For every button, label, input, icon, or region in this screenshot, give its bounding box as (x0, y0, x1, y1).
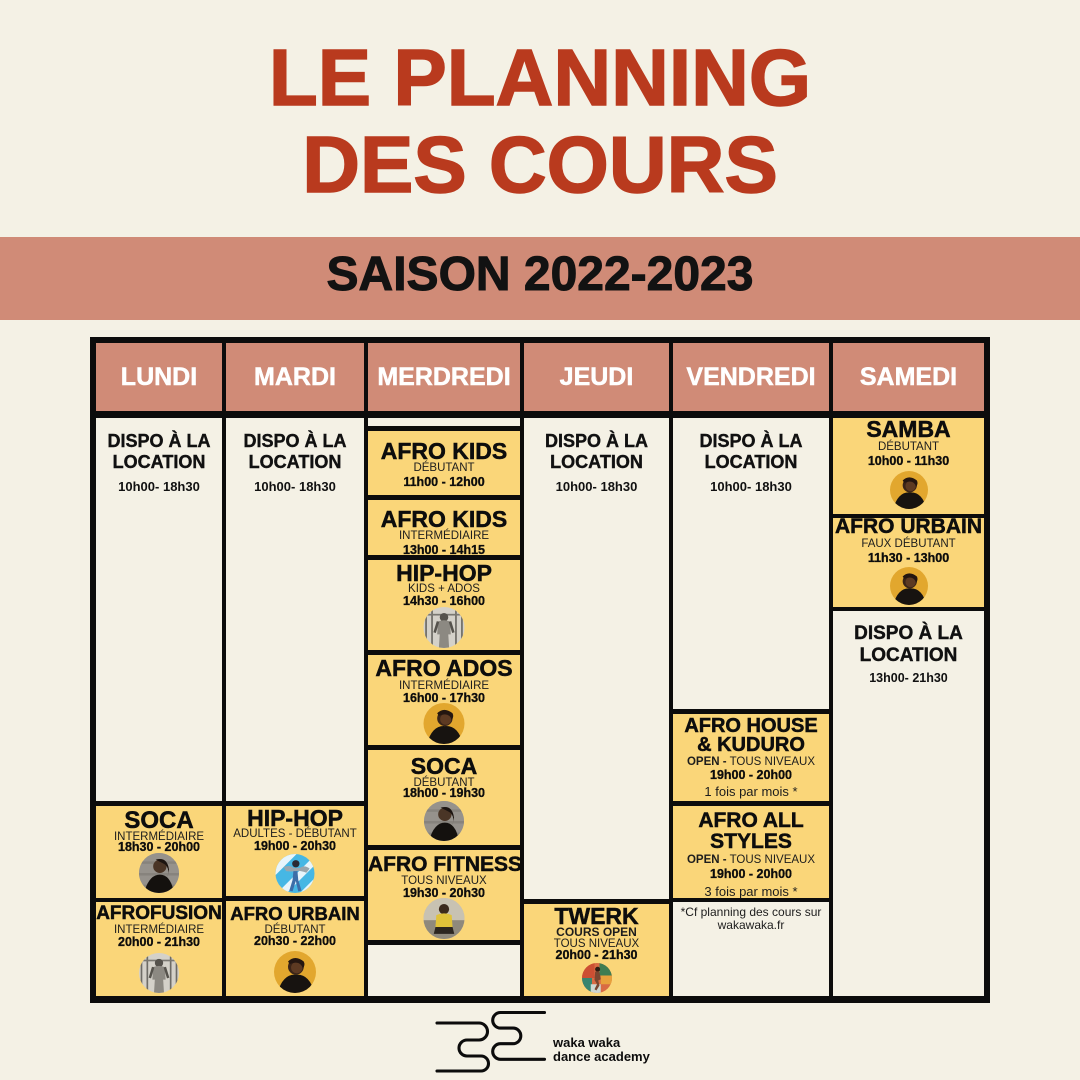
svg-text:waka waka: waka waka (552, 1035, 621, 1050)
svg-text:dance academy: dance academy (553, 1049, 651, 1064)
